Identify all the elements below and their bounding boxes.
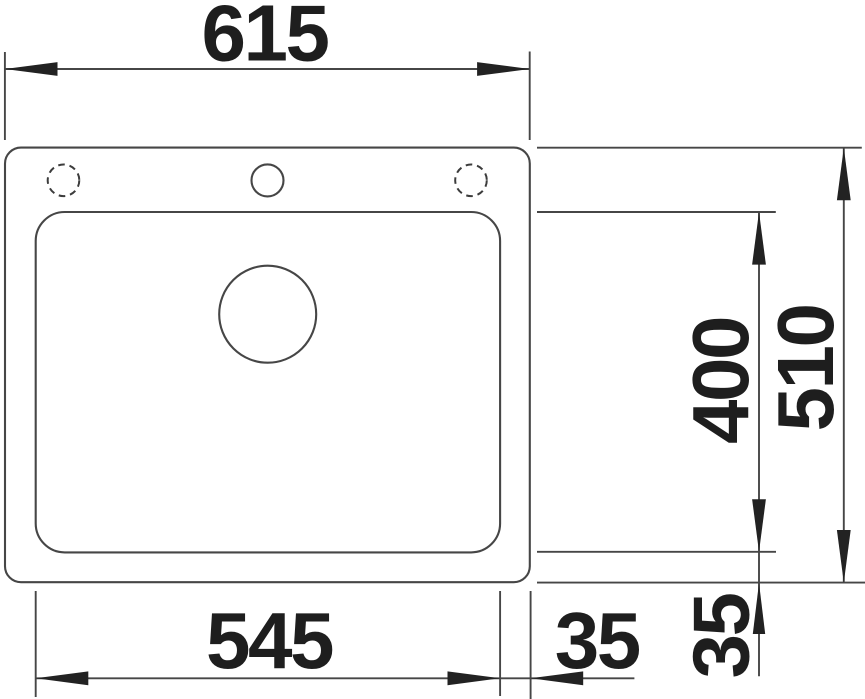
svg-text:510: 510	[761, 306, 850, 432]
svg-text:615: 615	[202, 0, 329, 78]
svg-text:35: 35	[676, 594, 765, 679]
svg-text:35: 35	[555, 596, 640, 685]
svg-text:545: 545	[206, 596, 333, 685]
svg-text:400: 400	[676, 318, 765, 444]
